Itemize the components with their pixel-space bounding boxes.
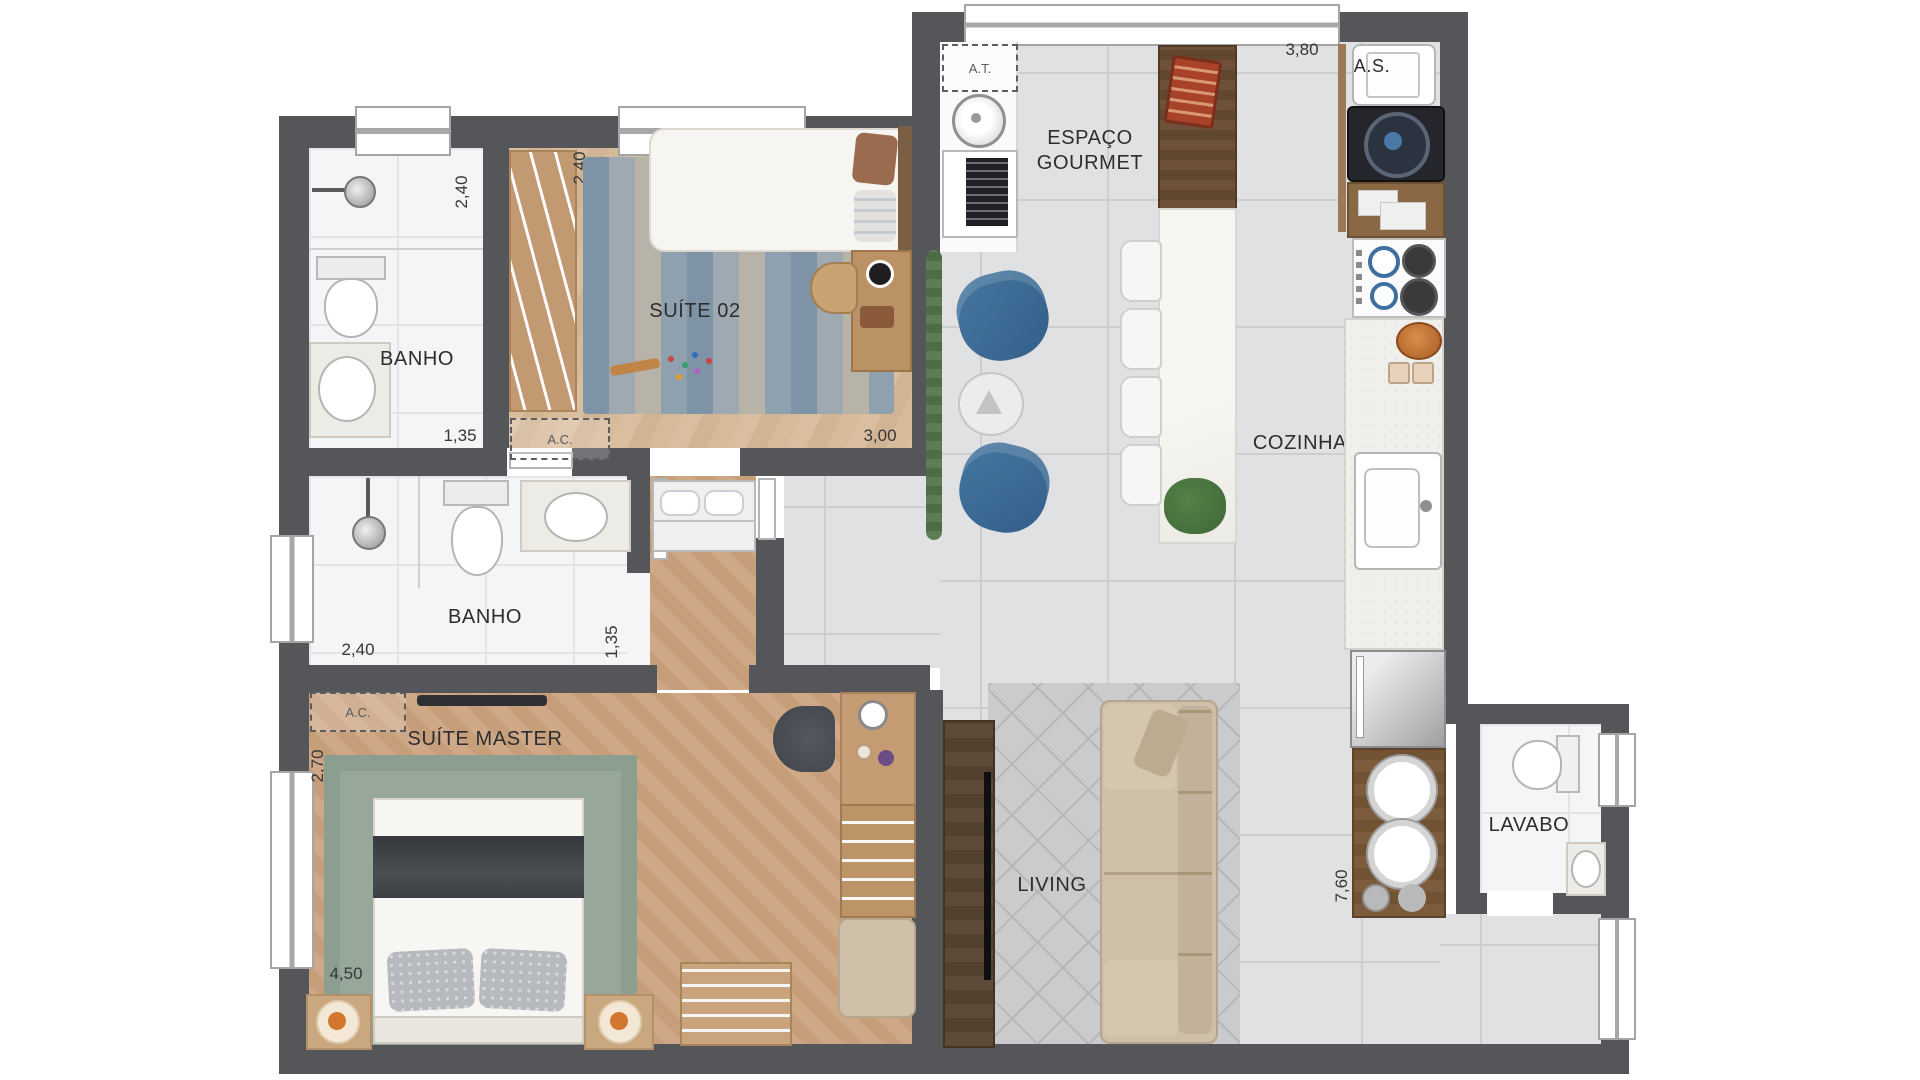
room-label-suite02: SUÍTE 02 xyxy=(628,300,762,323)
cooktop-knobs xyxy=(1356,248,1362,304)
toilet-bowl xyxy=(324,278,378,338)
at-box: A.T. xyxy=(942,44,1018,92)
small-plate-icon xyxy=(1362,884,1390,912)
shoe-rack xyxy=(680,962,792,1046)
burner-icon xyxy=(1368,246,1400,278)
suite02-toy-beads xyxy=(668,356,674,362)
dim-banho-suite02-depth: 1,35 xyxy=(430,426,490,446)
towel-roll xyxy=(660,490,700,516)
door-entry-hall xyxy=(758,478,776,540)
fruit-bowl xyxy=(1396,322,1442,360)
wall-mid-h-c xyxy=(740,448,940,476)
counter-item xyxy=(1388,362,1410,384)
dining-chair xyxy=(1120,444,1162,506)
counter-item xyxy=(1412,362,1434,384)
suite02-desk-lamp xyxy=(866,260,894,288)
island-food-tray xyxy=(1164,55,1223,129)
wall-lavabo-bottom-b xyxy=(1553,893,1601,914)
burner-icon xyxy=(1402,244,1436,278)
burner-icon xyxy=(1400,278,1438,316)
door-banho-master-gap xyxy=(627,573,650,665)
ac-box-suite-master: A.C. xyxy=(310,692,406,732)
suite-master-closet xyxy=(840,804,916,918)
wall-top-right-a xyxy=(912,12,964,42)
towel-roll xyxy=(704,490,744,516)
toilet-tank xyxy=(443,480,509,506)
dishwasher-handle xyxy=(1356,656,1364,738)
wall-lavabo-bottom-a xyxy=(1456,893,1487,914)
suite-master-blanket xyxy=(373,836,584,898)
toilet-tank xyxy=(316,256,386,280)
dim-suite-master-width: 4,50 xyxy=(314,964,378,984)
espaco-gourmet-line2: GOURMET xyxy=(1020,151,1160,176)
room-label-suite-master: SUÍTE MASTER xyxy=(392,728,578,751)
lamp-icon-inner xyxy=(610,1012,628,1030)
dishwasher xyxy=(1350,650,1446,748)
suite02-chair xyxy=(810,262,858,314)
dining-chair xyxy=(1120,376,1162,438)
sofa-seat-bottom xyxy=(1104,960,1178,1036)
sofa-seam xyxy=(1104,872,1178,875)
window-living xyxy=(1598,918,1636,1040)
door-lavabo-gap xyxy=(1487,891,1553,916)
burner-icon xyxy=(1370,282,1398,310)
reading-chair xyxy=(773,706,835,772)
toilet-bowl xyxy=(451,506,503,576)
ac-box-suite02: A.C. xyxy=(510,418,610,460)
window-banho-suite02 xyxy=(355,106,451,156)
dim-suite02-width: 3,00 xyxy=(848,426,912,446)
dim-banho-suite02-width: 2,40 xyxy=(452,162,472,222)
floor-plan: BANHO 2,40 1,35 2,40 SUÍTE 02 A.C. 3,00 … xyxy=(0,0,1920,1080)
suite02-desk-tray xyxy=(860,306,894,328)
at-label: A.T. xyxy=(969,61,991,76)
wall-hall-living xyxy=(756,538,784,668)
room-label-cozinha: COZINHA xyxy=(1240,432,1360,455)
shower-glass xyxy=(309,248,483,250)
suite-master-tv xyxy=(417,695,547,706)
plate-icon xyxy=(1368,756,1436,824)
wall-mid-h-a xyxy=(279,448,507,476)
room-label-espaco-gourmet: ESPAÇO GOURMET xyxy=(1020,126,1160,176)
planter-hedge xyxy=(926,250,942,540)
kitchen-sink-faucet xyxy=(1420,500,1432,512)
ac-condenser-grill xyxy=(966,158,1008,226)
wall-bottom xyxy=(279,1044,1629,1074)
room-label-banho-suite02: BANHO xyxy=(352,348,482,371)
sink-basin xyxy=(544,492,608,542)
sofa-back-cushions xyxy=(1178,706,1212,1034)
wall-banho-suite02 xyxy=(483,146,509,448)
dim-banho-master-depth: 1,35 xyxy=(602,610,622,674)
shower-glass xyxy=(418,476,420,588)
shower-head-icon xyxy=(344,176,376,208)
suite02-pillow-gray xyxy=(854,190,896,242)
ac-suite02-label: A.C. xyxy=(547,432,572,447)
lavabo-toilet-bowl xyxy=(1512,740,1562,790)
dim-gourmet-width: 3,80 xyxy=(1270,40,1334,60)
washing-machine-drum-core xyxy=(1384,132,1402,150)
lamp-icon-inner xyxy=(328,1012,346,1030)
vanity-items xyxy=(856,744,872,760)
cabinet-shelf-line xyxy=(654,520,754,522)
vanity-mirror xyxy=(858,700,888,730)
wall-suite-master-top-a xyxy=(279,665,657,693)
ac-suite-master-label: A.C. xyxy=(345,705,370,720)
wall-suite-master-top-b xyxy=(749,665,930,693)
living-right-floor xyxy=(1440,914,1601,1044)
dining-chair xyxy=(1120,240,1162,302)
suite-master-headboard xyxy=(373,1016,584,1044)
closet-ottoman xyxy=(838,918,916,1018)
hall-linen-cabinet xyxy=(652,480,756,552)
espaco-gourmet-line1: ESPAÇO xyxy=(1020,126,1160,151)
suite-master-pillow xyxy=(386,948,475,1012)
island-plant xyxy=(1164,478,1226,534)
room-label-lavabo: LAVABO xyxy=(1464,814,1594,837)
suite02-pillow-brown xyxy=(852,132,899,186)
tv-screen xyxy=(984,772,991,980)
kitchen-sink-basin xyxy=(1364,468,1420,548)
dining-chair xyxy=(1120,308,1162,370)
room-label-as: A.S. xyxy=(1340,56,1404,77)
window-banho-master xyxy=(270,535,314,643)
window-suite-master xyxy=(270,771,314,969)
dim-banho-master-width: 2,40 xyxy=(326,640,390,660)
lavabo-sink-basin xyxy=(1571,850,1601,888)
water-heater-knob xyxy=(971,113,981,123)
suite02-headboard xyxy=(898,126,912,250)
room-label-living: LIVING xyxy=(996,874,1108,897)
dim-kitchen-length: 7,60 xyxy=(1332,854,1352,918)
room-label-banho-master: BANHO xyxy=(420,606,550,629)
suite-master-pillow xyxy=(478,948,567,1012)
plate-icon xyxy=(1368,820,1436,888)
suite02-closet xyxy=(509,150,577,412)
wall-suite-master-right xyxy=(912,690,943,1044)
shower-head-icon xyxy=(352,516,386,550)
cabinet-tray xyxy=(1380,202,1426,230)
living-left-floor xyxy=(784,476,940,668)
window-lavabo xyxy=(1598,733,1636,807)
